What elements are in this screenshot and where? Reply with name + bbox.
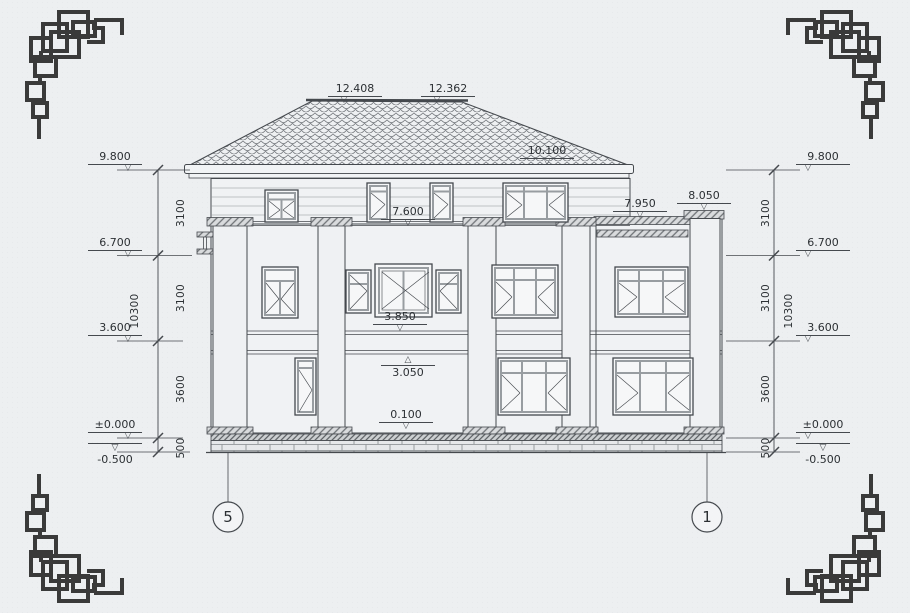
level-triangle-icon: ▽: [381, 219, 435, 228]
elevation-marker-left-9800: 9.800 ▽: [88, 151, 142, 173]
elevation-value: 3.050: [381, 365, 435, 379]
level-triangle-icon: ▽: [379, 422, 433, 431]
level-triangle-icon: ▽: [336, 96, 352, 105]
level-triangle-icon: ▽: [613, 211, 667, 220]
level-triangle-icon: ▽: [120, 250, 136, 259]
corner-ornament-top-right: [788, 12, 883, 139]
level-triangle-icon: ▽: [120, 164, 136, 173]
window: [262, 267, 298, 318]
level-triangle-icon: ▽: [800, 164, 816, 173]
elevation-value: ±0.000: [88, 419, 142, 433]
window: [295, 358, 316, 415]
elevation-marker-left-0000: ±0.000 ▽: [88, 419, 142, 441]
dim-segment: 3600: [175, 367, 187, 411]
elevation-marker-right-0000: ±0.000 ▽: [796, 419, 850, 441]
window: [265, 190, 298, 222]
window: [436, 270, 461, 313]
level-triangle-icon: ▽: [677, 203, 731, 212]
terrace-marker: 7.600 ▽: [381, 206, 435, 228]
floor-band-top-marker: 3.850 ▽: [373, 311, 427, 333]
dim-segment: 3100: [175, 191, 187, 235]
elevation-marker-left-6700: 6.700 ▽: [88, 237, 142, 259]
axis-bubble-label-left: 5: [213, 502, 243, 532]
building: [185, 100, 727, 453]
elevation-marker-right-9800: 9.800 ▽: [796, 151, 850, 173]
axis-bubble-label-right: 1: [692, 502, 722, 532]
level-triangle-icon: ▽: [373, 324, 427, 333]
window: [492, 265, 558, 318]
dim-overall: 10300: [783, 289, 795, 333]
elevation-marker-right-6700: 6.700 ▽: [796, 237, 850, 259]
elevation-marker-right-minus0500: ▽ -0.500: [796, 443, 850, 466]
dim-segment: 500: [760, 426, 772, 470]
window: [503, 183, 568, 222]
level-triangle-icon: ▽: [800, 335, 816, 344]
level-triangle-icon: ▽: [429, 96, 445, 105]
dim-segment: 3100: [175, 276, 187, 320]
level-triangle-icon: △: [381, 356, 435, 365]
elevation-marker-left-minus0500: ▽ -0.500: [88, 443, 142, 466]
wing-parapet-marker: 7.950 ▽: [613, 198, 667, 220]
window: [498, 358, 570, 415]
dim-segment: 3100: [760, 191, 772, 235]
elevation-value: 12.408: [328, 83, 382, 97]
ridge-left-marker: 12.408 ▽: [328, 83, 382, 105]
window: [615, 267, 688, 317]
floor-band-soffit-marker: △ 3.050: [381, 356, 435, 379]
level-triangle-icon: ▽: [520, 158, 574, 167]
elevation-value: -0.500: [88, 454, 142, 466]
window: [613, 358, 693, 415]
dim-segment: 500: [175, 426, 187, 470]
wing-band: [597, 230, 688, 237]
ridge-right-marker: 12.362 ▽: [421, 83, 475, 105]
elevation-value: -0.500: [796, 454, 850, 466]
level-triangle-icon: ▽: [120, 335, 136, 344]
wing-cap-marker: 8.050 ▽: [677, 190, 731, 212]
roof-slope-marker: 10.100 ▽: [520, 145, 574, 167]
plinth-base: [206, 434, 726, 453]
elevation-value: 12.362: [421, 83, 475, 97]
level-triangle-icon: ▽: [800, 432, 816, 441]
level-triangle-icon: ▽: [120, 432, 136, 441]
dim-overall: 10300: [129, 289, 141, 333]
plinth-marker: 0.100 ▽: [379, 409, 433, 431]
dim-segment: 3100: [760, 276, 772, 320]
elevation-value: 6.700: [88, 237, 142, 251]
elevation-value: 9.800: [88, 151, 142, 165]
corner-ornament-bottom-left: [27, 474, 122, 601]
elevation-marker-right-3600: 3.600 ▽: [796, 322, 850, 344]
window: [346, 270, 371, 313]
corner-ornament-bottom-right: [788, 474, 883, 601]
corner-ornament-top-left: [27, 12, 122, 139]
level-triangle-icon: ▽: [800, 250, 816, 259]
elevation-sheet: 9.800 ▽ 6.700 ▽ 3.600 ▽ ±0.000 ▽ ▽ -0.50…: [0, 0, 910, 613]
dim-segment: 3600: [760, 367, 772, 411]
